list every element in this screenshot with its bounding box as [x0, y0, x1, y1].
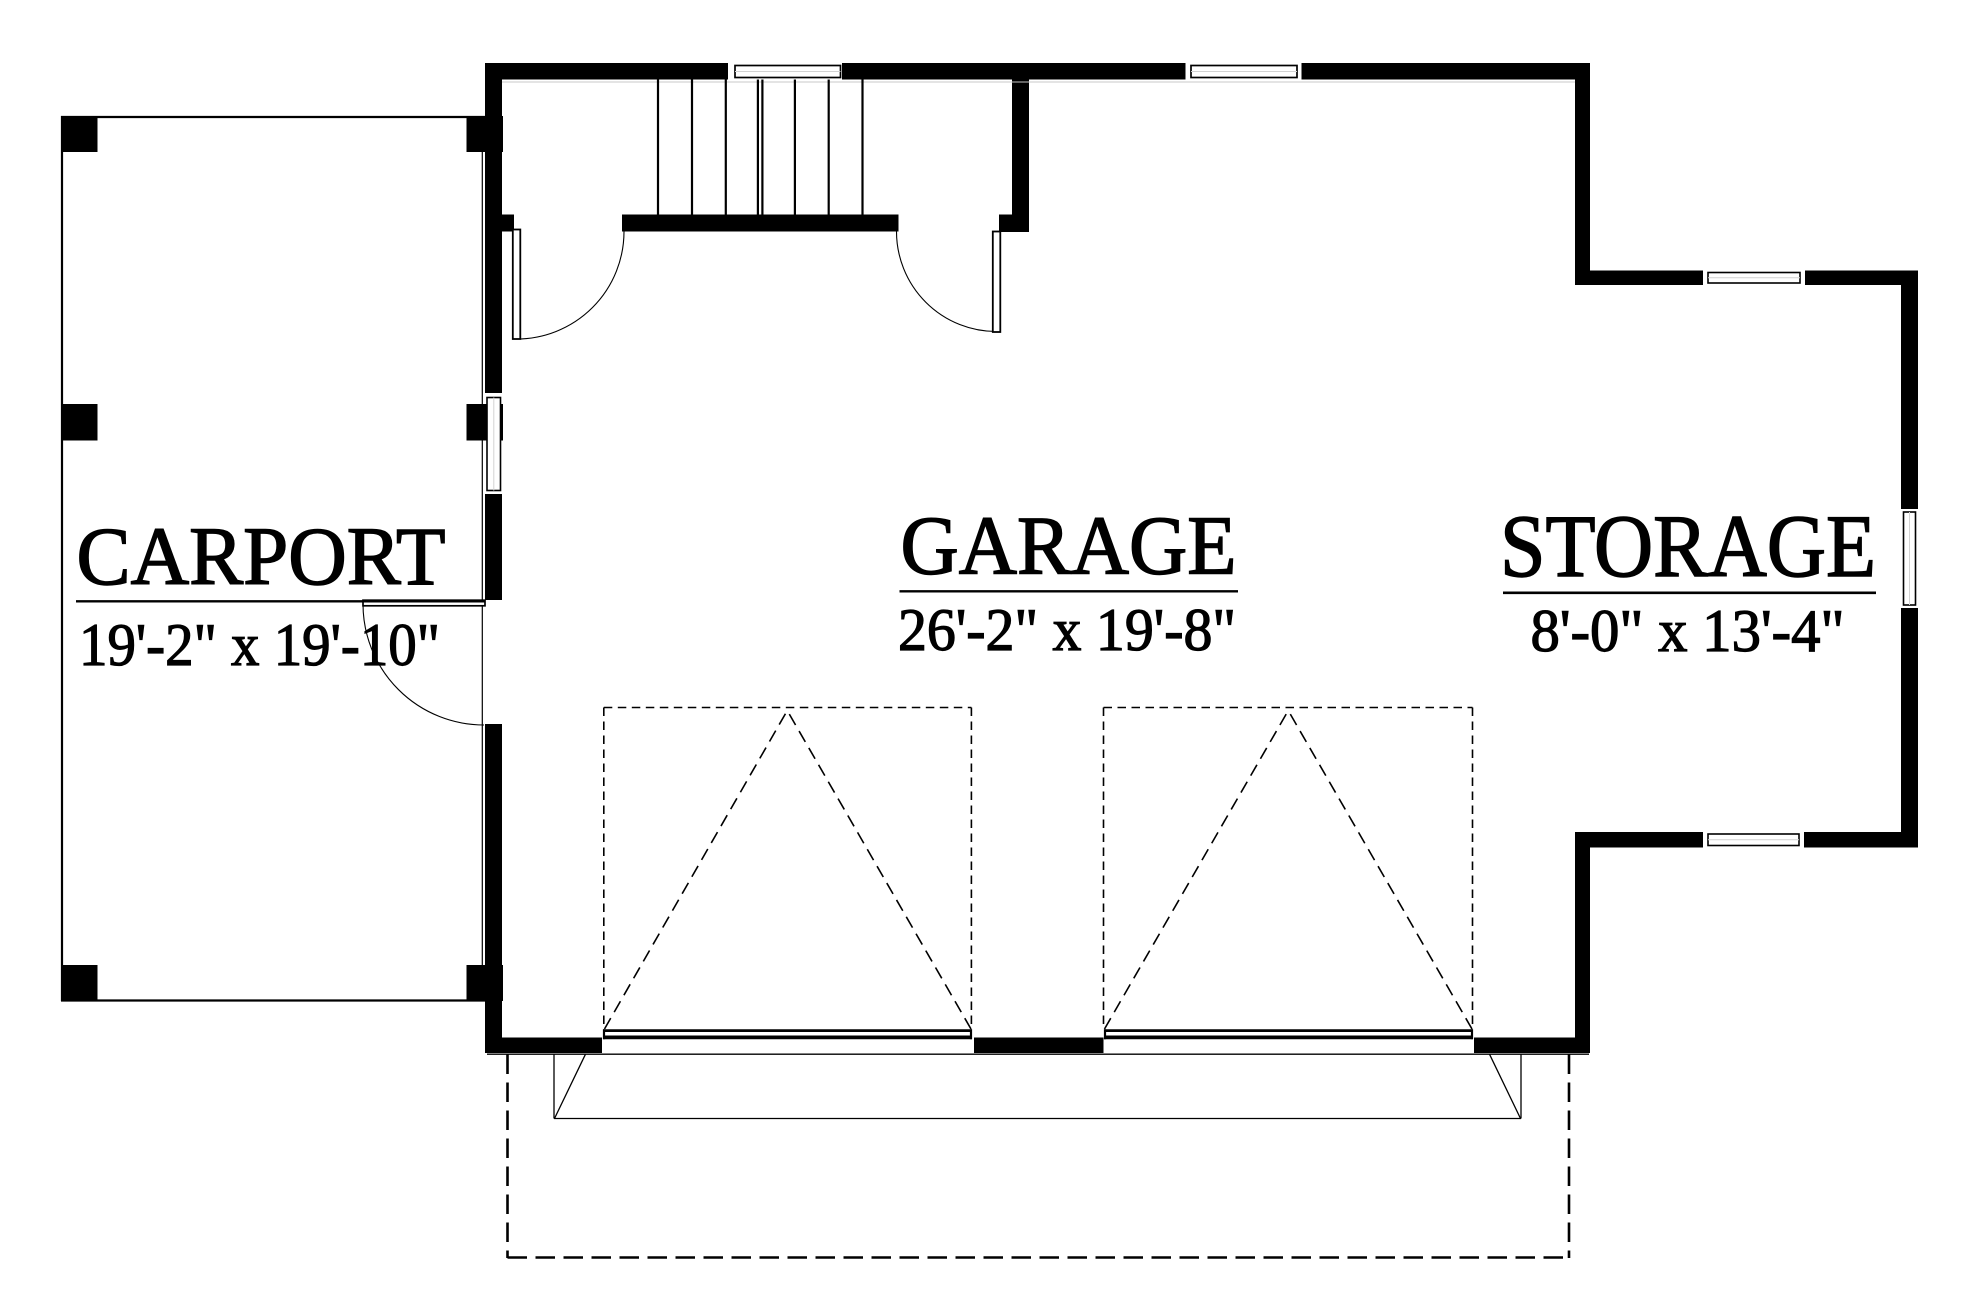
- svg-text:GARAGE: GARAGE: [901, 500, 1237, 593]
- svg-text:19'-2" x 19'-10": 19'-2" x 19'-10": [79, 612, 440, 678]
- svg-text:26'-2" x 19'-8": 26'-2" x 19'-8": [898, 597, 1236, 663]
- svg-text:CARPORT: CARPORT: [77, 510, 446, 602]
- svg-text:STORAGE: STORAGE: [1500, 498, 1876, 596]
- svg-text:8'-0" x 13'-4": 8'-0" x 13'-4": [1531, 598, 1845, 664]
